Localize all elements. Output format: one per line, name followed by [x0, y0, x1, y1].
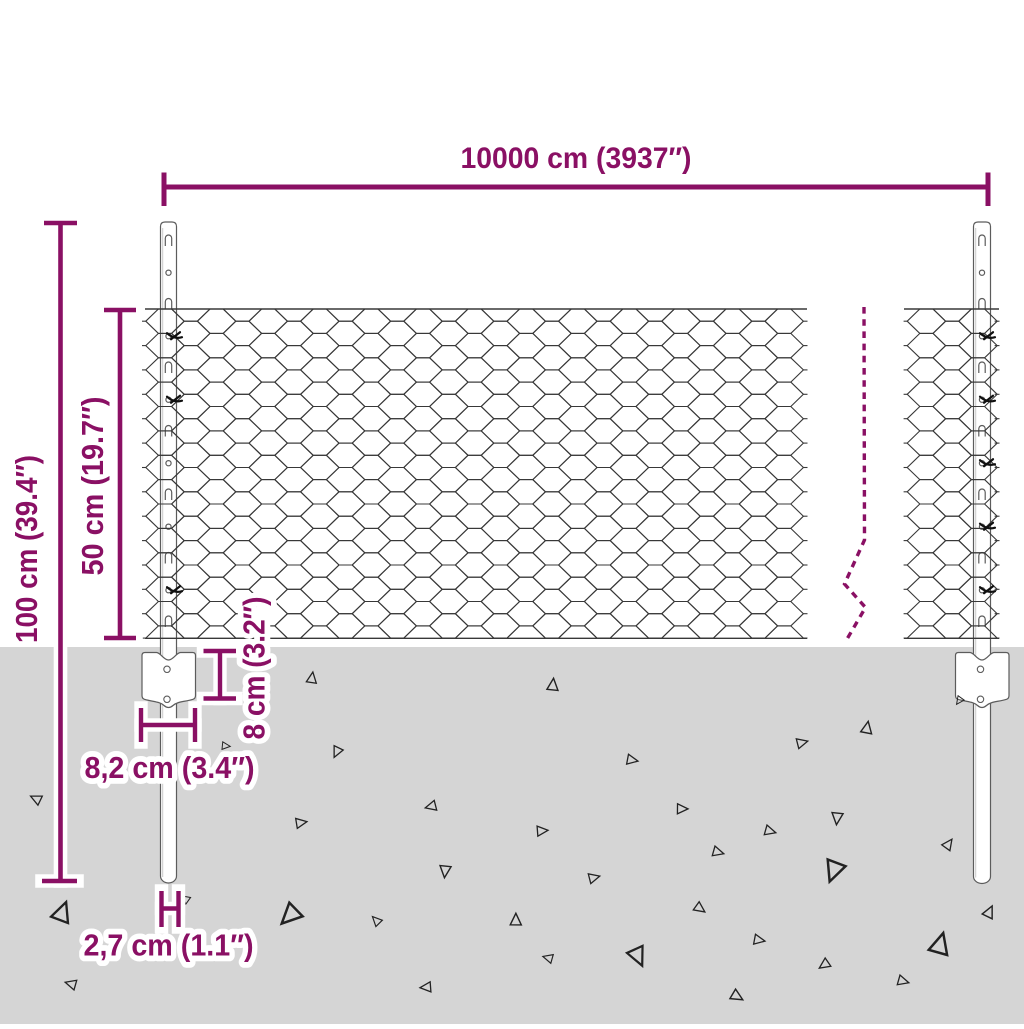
svg-text:8 cm (3.2″): 8 cm (3.2″) [237, 597, 272, 740]
svg-text:100 cm (39.4″): 100 cm (39.4″) [9, 455, 44, 643]
svg-text:10000 cm (3937″): 10000 cm (3937″) [461, 142, 692, 175]
svg-text:8,2 cm (3.4″): 8,2 cm (3.4″) [85, 750, 255, 785]
svg-text:50 cm (19.7″): 50 cm (19.7″) [75, 397, 110, 576]
svg-text:2,7 cm (1.1″): 2,7 cm (1.1″) [84, 928, 254, 963]
